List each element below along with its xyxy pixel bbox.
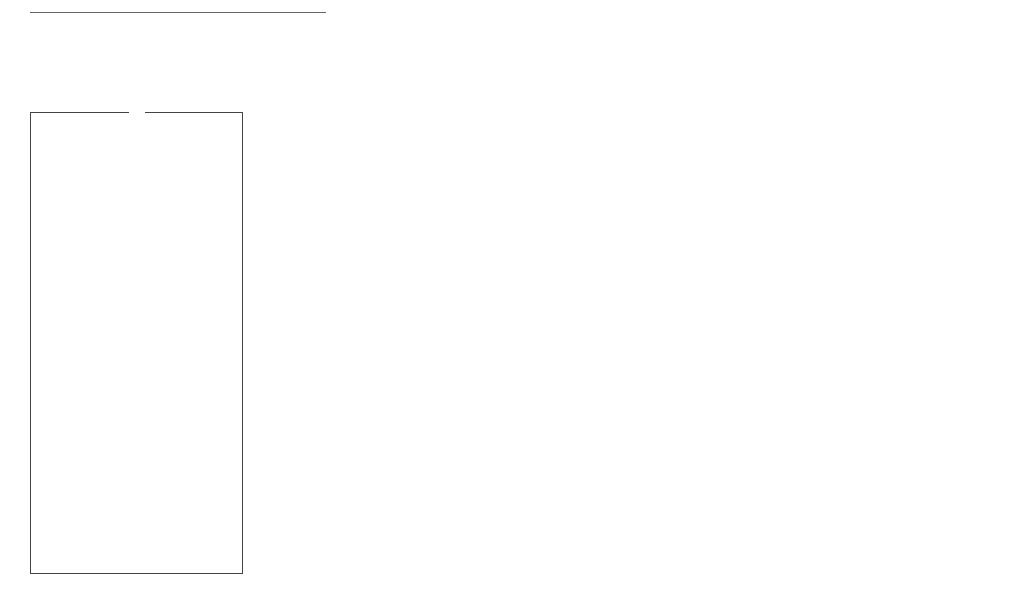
page-title	[30, 6, 326, 13]
legend-box	[30, 112, 243, 574]
campground-map-page: { "header": { "title": "Lake Loramie Sta…	[0, 0, 1024, 598]
map-header	[30, 6, 326, 23]
legend-title	[31, 105, 242, 123]
